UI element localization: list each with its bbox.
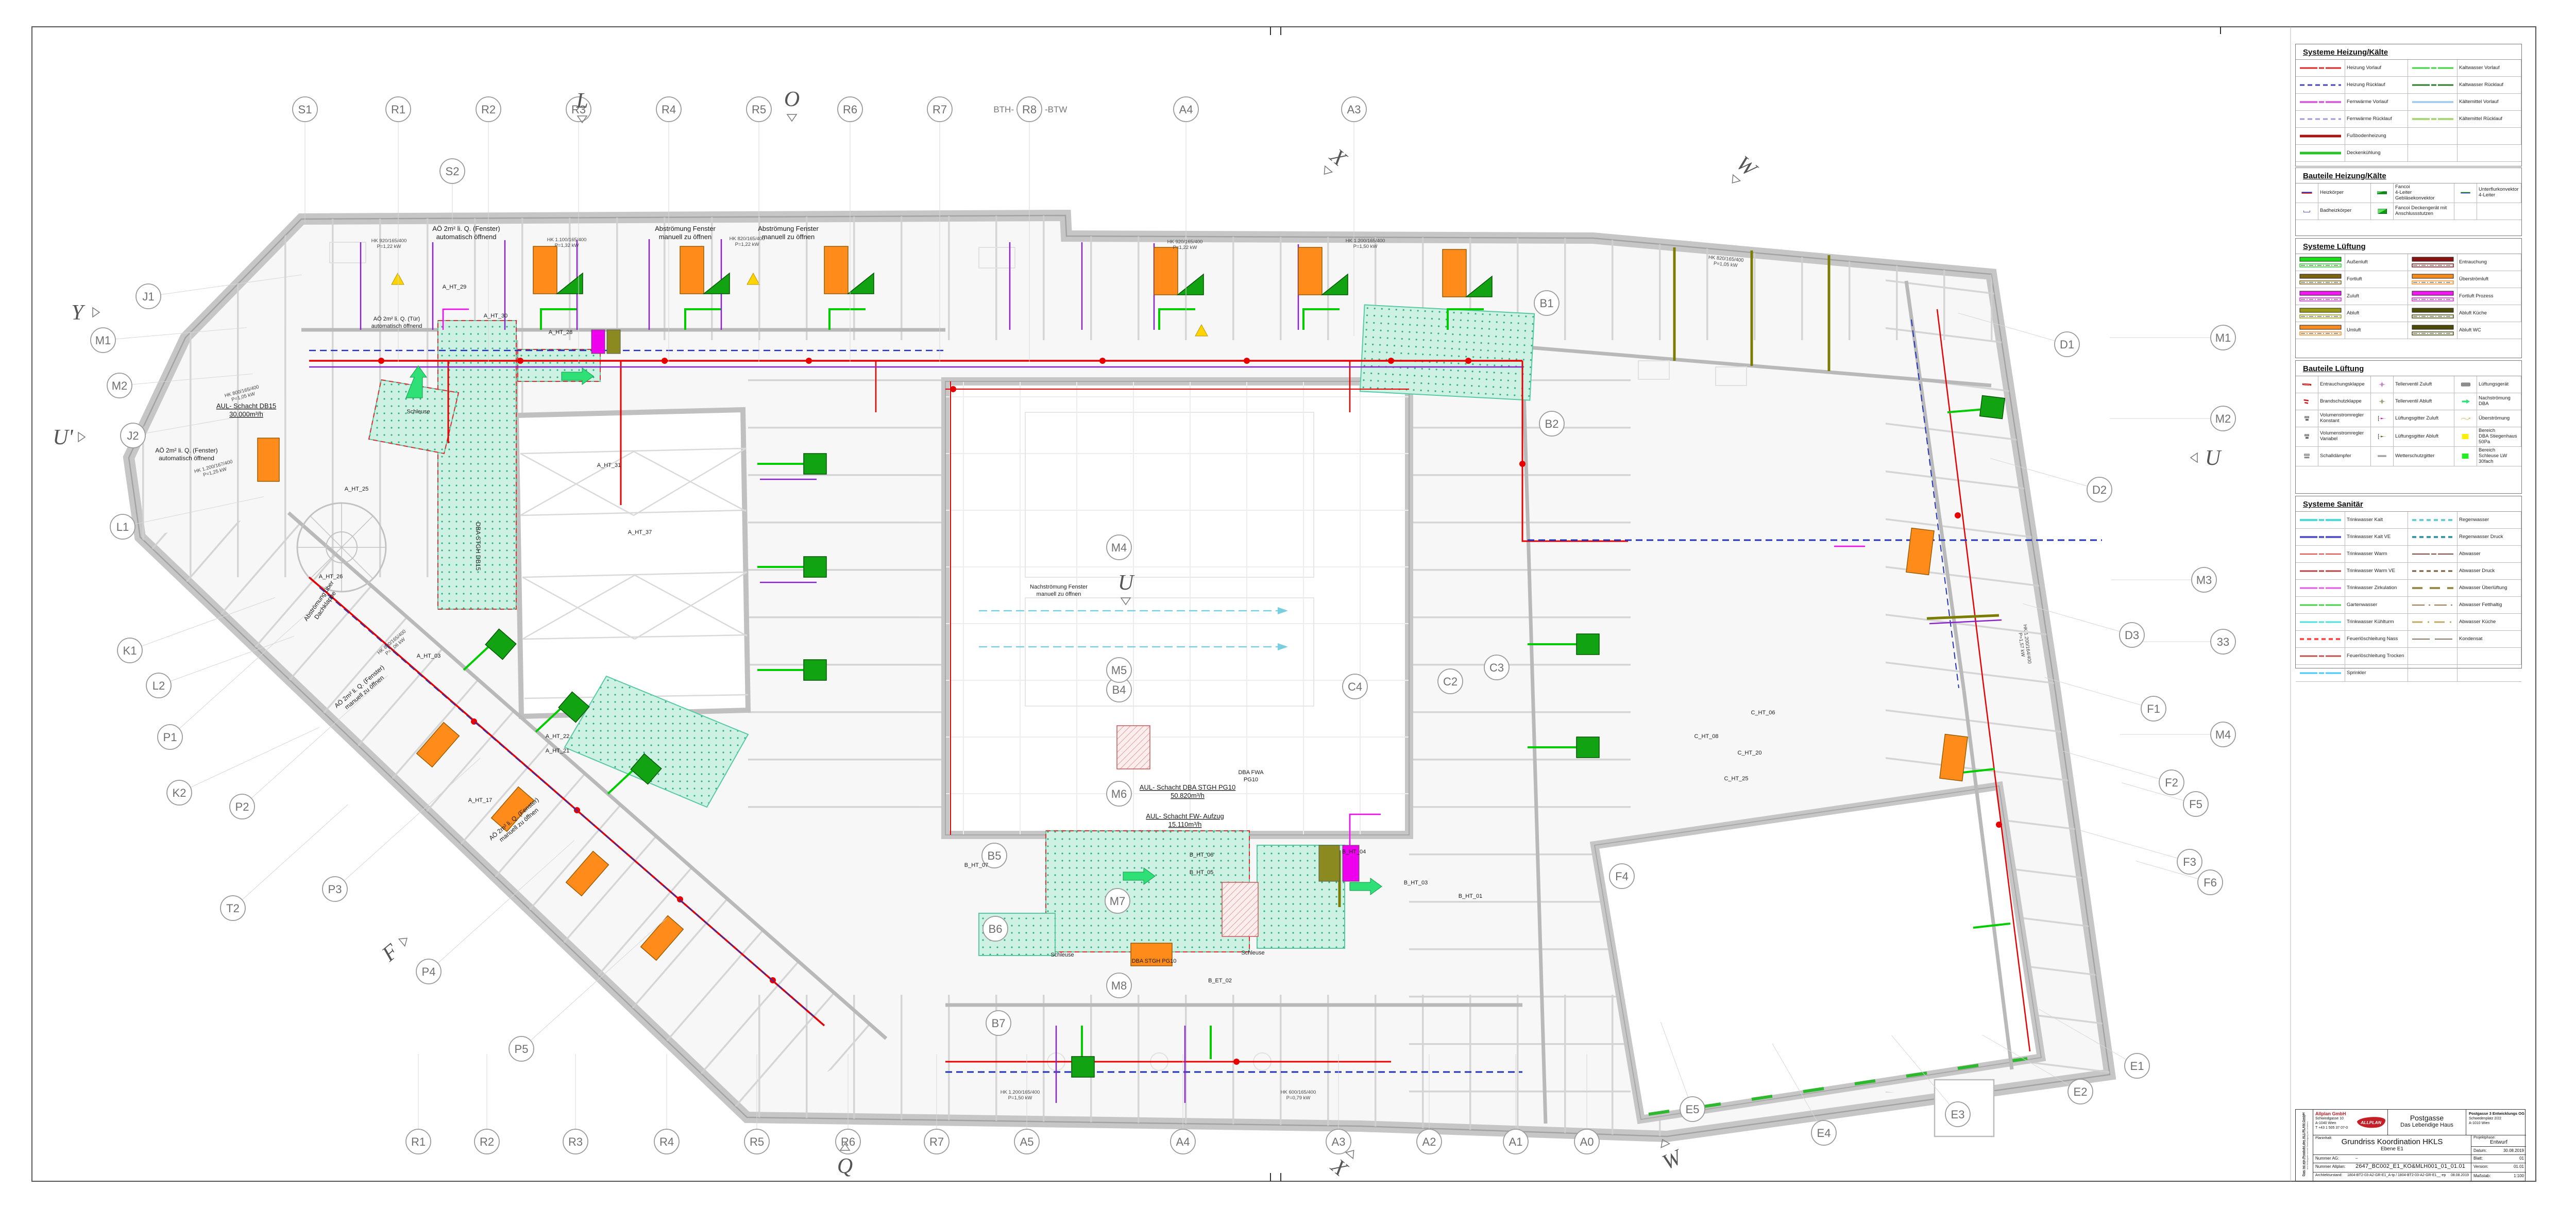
legend-swatch xyxy=(2454,376,2477,393)
line-swatch-icon xyxy=(2298,547,2343,561)
svg-text:AUL- Schacht DB15: AUL- Schacht DB15 xyxy=(216,402,276,410)
schalldaempfer-swatch-icon xyxy=(2297,449,2316,463)
svg-text:DBA STGH DB15: DBA STGH DB15 xyxy=(474,522,482,571)
legend-section-2: Systeme LüftungAußenluftEntrauchungFortl… xyxy=(2295,238,2522,358)
svg-text:A2: A2 xyxy=(1422,1135,1436,1148)
ueberstroemung-swatch-icon xyxy=(2456,411,2475,426)
svg-text:C_HT_25: C_HT_25 xyxy=(1724,776,1748,782)
svg-text:automatisch öffnend: automatisch öffnend xyxy=(436,233,497,241)
plan-annotation-16: Schleuse xyxy=(1241,950,1264,956)
legend-label: Fußbodenheizung xyxy=(2345,128,2408,145)
legend-label: Außenluft xyxy=(2345,254,2408,271)
plan-annotation-2: Abströmung Fenstermanuell zu öffnen xyxy=(758,225,819,241)
svg-text:M6: M6 xyxy=(1111,788,1127,800)
legend-swatch xyxy=(2454,183,2477,203)
legend-label: Unterflurkonvektor 4-Leiter xyxy=(2477,183,2521,203)
legend-swatch xyxy=(2454,203,2477,220)
legend-label xyxy=(2458,648,2521,665)
architekturstand-date: 08.08.2019 xyxy=(2451,1174,2471,1182)
svg-text:HK 1.100/165/400: HK 1.100/165/400 xyxy=(547,237,587,243)
grid-bubble-B6: B6 xyxy=(983,916,1008,941)
svg-text:M5: M5 xyxy=(1111,664,1127,677)
svg-text:R2: R2 xyxy=(480,1135,494,1148)
svg-text:O: O xyxy=(784,88,800,111)
legend-swatch xyxy=(2296,288,2345,305)
legend-label: Feuerlöschleitung Trocken xyxy=(2345,648,2408,665)
legend-label xyxy=(2458,145,2521,162)
svg-text:A_HT_21: A_HT_21 xyxy=(546,748,569,754)
svg-text:M2: M2 xyxy=(2215,412,2231,425)
grid-bubble-M8: M8 xyxy=(1107,973,1131,998)
legend-label: Abwasser Druck xyxy=(2458,563,2521,580)
plan-annotation-0: AÖ 2m² li. Q. (Fenster)automatisch öffne… xyxy=(432,225,500,241)
svg-text:P=0,79 kW: P=0,79 kW xyxy=(1286,1095,1311,1101)
svg-text:AUL- Schacht DBA STGH PG10: AUL- Schacht DBA STGH PG10 xyxy=(1140,783,1235,791)
legend-swatch xyxy=(2408,111,2458,128)
plan-annotation-23: B_HT_01 xyxy=(1459,893,1482,899)
duct-swatch-icon xyxy=(2410,289,2455,304)
plan-title: Grundriss Koordination HKLS xyxy=(2313,1137,2471,1146)
zone-m7 xyxy=(1046,831,1249,952)
svg-text:R6: R6 xyxy=(843,103,857,116)
plan-annotation-17: B_HT_07 xyxy=(964,862,988,868)
legend-label: Tellerventil Zuluft xyxy=(2394,376,2454,393)
legend-swatch xyxy=(2408,60,2458,77)
svg-text:M1: M1 xyxy=(95,334,111,347)
svg-text:HK 600/165/400: HK 600/165/400 xyxy=(1281,1090,1316,1095)
plan-annotation-30: A_HT_22 xyxy=(546,733,569,740)
date-block: Datum: 30.08.2019 xyxy=(2471,1147,2526,1155)
svg-text:AUL- Schacht FW- Aufzug: AUL- Schacht FW- Aufzug xyxy=(1146,812,1224,820)
legend-label: Regenwasser Druck xyxy=(2458,529,2521,546)
plan-annotation-19: B_HT_05 xyxy=(1190,869,1213,876)
legend-section-1: Bauteile Heizung/KälteHeizkörperFancoi 4… xyxy=(2295,167,2522,236)
legend-label: Nachströmung DBA xyxy=(2477,393,2521,410)
svg-text:D3: D3 xyxy=(2125,629,2139,642)
nummer-allplan-value: 2647_BC002_E1_KO&MLH001_01_01.01 xyxy=(2355,1163,2471,1172)
legend-swatch xyxy=(2296,563,2345,580)
svg-text:S2: S2 xyxy=(446,165,460,178)
line-swatch-icon xyxy=(2298,61,2343,75)
svg-text:A_HT_03: A_HT_03 xyxy=(417,653,440,659)
line-swatch-icon xyxy=(2298,146,2343,160)
legend-label xyxy=(2477,203,2521,220)
svg-text:B_ET_02: B_ET_02 xyxy=(1208,978,1232,984)
legend-label: Abwasser Überlüftung xyxy=(2458,580,2521,597)
legend-label: Tellerventil Abluft xyxy=(2394,393,2454,410)
grid-bubble-C2: C2 xyxy=(1438,669,1463,694)
plan-annotation-4: AÖ 2m² li. Q. (Fenster)automatisch öffne… xyxy=(155,447,217,462)
legend-swatch xyxy=(2296,128,2345,145)
phase-block: Projektphase: Entwurf xyxy=(2471,1135,2526,1147)
grid-bubble-B7: B7 xyxy=(986,1011,1011,1035)
nummer-allplan-row: Nummer Allplan: 2647_BC002_E1_KO&MLH001_… xyxy=(2313,1163,2471,1172)
plan-content-label: Planinhalt: xyxy=(2315,1136,2332,1140)
svg-text:manuell zu öffnen: manuell zu öffnen xyxy=(762,233,815,241)
legend-swatch xyxy=(2408,77,2458,94)
svg-text:AÖ 2m² li. Q. (Fenster): AÖ 2m² li. Q. (Fenster) xyxy=(432,225,500,232)
legend-section-title: Bauteile Lüftung xyxy=(2303,364,2521,373)
grid-bubble-M6: M6 xyxy=(1107,781,1131,806)
svg-text:C3: C3 xyxy=(1489,661,1504,674)
bereich-swatch-icon xyxy=(2456,429,2475,444)
legend-label: Badheizkörper xyxy=(2318,203,2371,220)
legend-swatch xyxy=(2296,580,2345,597)
line-swatch-icon xyxy=(2298,649,2343,663)
svg-text:P5: P5 xyxy=(515,1043,529,1056)
line-swatch-icon xyxy=(2298,632,2343,646)
svg-text:P2: P2 xyxy=(235,800,249,813)
plan-annotation-1: Abströmung Fenstermanuell zu öffnen xyxy=(655,225,716,241)
svg-text:33: 33 xyxy=(2217,635,2229,648)
svg-text:A_HT_30: A_HT_30 xyxy=(484,313,507,319)
legend-swatch xyxy=(2296,665,2345,682)
legend-label: Wetterschutzgitter xyxy=(2394,447,2454,466)
legend-swatch xyxy=(2296,614,2345,631)
legend-swatch xyxy=(2371,410,2394,427)
svg-text:A4: A4 xyxy=(1176,1135,1190,1148)
svg-text:-BTW: -BTW xyxy=(1045,105,1067,114)
svg-text:R7: R7 xyxy=(933,103,947,116)
svg-text:R4: R4 xyxy=(659,1135,674,1148)
svg-text:P=1,32 kW: P=1,32 kW xyxy=(555,243,579,248)
project-name: Postgasse xyxy=(2388,1114,2466,1122)
line-swatch-icon xyxy=(2298,530,2343,544)
svg-text:M4: M4 xyxy=(2215,728,2231,741)
legend-swatch xyxy=(2408,597,2458,614)
svg-text:B1: B1 xyxy=(1540,297,1554,310)
legend-swatch xyxy=(2408,288,2458,305)
duct-swatch-icon xyxy=(2298,255,2343,270)
plan-annotation-21: B_HT_04 xyxy=(1342,849,1366,855)
legend-swatch xyxy=(2296,393,2318,410)
svg-text:P1: P1 xyxy=(163,731,177,744)
line-swatch-icon xyxy=(2410,564,2455,578)
plan-annotation-24: A_HT_29 xyxy=(443,284,466,290)
phase-label: Projektphase: xyxy=(2473,1136,2524,1140)
legend-swatch xyxy=(2454,393,2477,410)
svg-text:L2: L2 xyxy=(152,679,165,692)
svg-text:HK 920/165/400: HK 920/165/400 xyxy=(1167,239,1203,245)
legend-label: Überströmluft xyxy=(2458,271,2521,288)
legend-label: Trinkwasser Warm VE xyxy=(2345,563,2408,580)
grid-bubble-M4: M4 xyxy=(1107,535,1131,560)
duct-swatch-icon xyxy=(2298,323,2343,338)
client-name: Postgasse 3 Entwicklungs OG xyxy=(2469,1111,2526,1116)
legend-swatch xyxy=(2408,512,2458,529)
legend-swatch xyxy=(2408,271,2458,288)
legend-swatch xyxy=(2371,376,2394,393)
svg-text:DBA STGH PG10: DBA STGH PG10 xyxy=(1132,958,1177,964)
svg-text:R5: R5 xyxy=(750,1135,764,1148)
legend-label: Abwasser xyxy=(2458,546,2521,563)
svg-text:M1: M1 xyxy=(2215,331,2231,344)
svg-text:F3: F3 xyxy=(2183,856,2196,868)
legend-swatch xyxy=(2296,648,2345,665)
legend-label: Kältemittel Vorlauf xyxy=(2458,94,2521,111)
svg-text:J1: J1 xyxy=(142,290,154,303)
plan-annotation-38: C_HT_25 xyxy=(1724,776,1748,782)
line-swatch-icon xyxy=(2410,615,2455,629)
svg-text:AÖ 2m² li. Q. (Fenster): AÖ 2m² li. Q. (Fenster) xyxy=(155,447,217,454)
legend-swatch xyxy=(2408,145,2458,162)
line-swatch-icon xyxy=(2298,598,2343,612)
svg-text:T2: T2 xyxy=(226,902,240,915)
svg-text:A5: A5 xyxy=(1020,1135,1034,1148)
line-swatch-icon xyxy=(2410,78,2455,92)
duct-swatch-icon xyxy=(2298,272,2343,287)
legend-label: Lüftungsgerät xyxy=(2477,376,2521,393)
svg-text:F5: F5 xyxy=(2189,798,2202,811)
legend-swatch xyxy=(2296,183,2318,203)
svg-text:B5: B5 xyxy=(988,849,1002,862)
svg-text:Abströmung Fenster: Abströmung Fenster xyxy=(758,225,819,232)
legend-label: Abluft WC xyxy=(2458,322,2521,339)
line-swatch-icon xyxy=(2410,513,2455,527)
bsk-swatch-icon xyxy=(2297,394,2316,409)
geraet-swatch-icon xyxy=(2456,377,2475,392)
plan-annotation-18: B_HT_06 xyxy=(1190,852,1213,858)
svg-text:A_HT_28: A_HT_28 xyxy=(549,329,572,336)
line-swatch-icon xyxy=(2410,61,2455,75)
svg-text:U: U xyxy=(2205,446,2222,470)
legend-label: Heizkörper xyxy=(2318,183,2371,203)
project-subtitle: Das Lebendige Haus xyxy=(2388,1122,2466,1128)
legend-label: Fancoi 4-Leiter Gebläsekonvektor xyxy=(2394,183,2454,203)
svg-text:Schleuse: Schleuse xyxy=(1050,952,1074,958)
svg-text:M3: M3 xyxy=(2196,574,2212,587)
drawing-sheet: S1S2R1R2R3R4R5R6R7R8BTH--BTWA4A3R1R2R3R4… xyxy=(0,0,2555,1206)
company-name: Allplan GmbH xyxy=(2315,1111,2353,1117)
plan-subtitle: Ebene E1 xyxy=(2313,1146,2471,1152)
svg-text:ALLPLAN: ALLPLAN xyxy=(2360,1120,2382,1125)
legend-swatch xyxy=(2371,393,2394,410)
legend-label: Kaltwasser Rücklauf xyxy=(2458,77,2521,94)
zone-dba-fwa xyxy=(1222,882,1258,936)
svg-text:A0: A0 xyxy=(1580,1135,1594,1148)
legend-label: Entrauchungsklappe xyxy=(2318,376,2371,393)
line-swatch-icon xyxy=(2410,598,2455,612)
legend-label: Bereich Schleuse LW 30fach xyxy=(2477,447,2521,466)
svg-text:50.820m³/h: 50.820m³/h xyxy=(1171,792,1205,799)
svg-text:F6: F6 xyxy=(2204,876,2217,889)
heizkoerper-swatch-icon xyxy=(2297,186,2316,200)
client-address2: A-1010 Wien xyxy=(2469,1121,2526,1126)
legend-label: Zuluft xyxy=(2345,288,2408,305)
massstab-row: Maßstab: 1:100 xyxy=(2471,1172,2526,1182)
line-swatch-icon xyxy=(2298,112,2343,126)
gitter-swatch-icon xyxy=(2372,411,2392,426)
line-swatch-icon xyxy=(2298,129,2343,143)
legend-swatch xyxy=(2408,614,2458,631)
legend-section-title: Systeme Heizung/Kälte xyxy=(2303,48,2521,57)
svg-text:S1: S1 xyxy=(298,103,312,116)
legend-label: Entrauchung xyxy=(2458,254,2521,271)
svg-text:30.000m³/h: 30.000m³/h xyxy=(229,410,263,418)
svg-text:HK 820/165/400: HK 820/165/400 xyxy=(730,236,765,242)
svg-text:manuell zu öffnen: manuell zu öffnen xyxy=(659,233,711,241)
legend-swatch xyxy=(2371,447,2394,466)
plan-annotation-33: A_HT_37 xyxy=(628,529,652,535)
legend-swatch xyxy=(2408,254,2458,271)
legend-label: Volumenstromregler Variabel xyxy=(2318,427,2371,447)
plan-annotation-14: DBA STGH PG10 xyxy=(1132,958,1177,964)
svg-text:R1: R1 xyxy=(391,103,405,116)
svg-text:E1: E1 xyxy=(2130,1060,2144,1073)
plan-annotation-25: A_HT_30 xyxy=(484,313,507,319)
legend-label: Heizung Rücklauf xyxy=(2345,77,2408,94)
legend-swatch xyxy=(2296,631,2345,648)
legend-swatch xyxy=(2454,410,2477,427)
plan-content-block: Planinhalt: Grundriss Koordination HKLS … xyxy=(2313,1135,2471,1155)
legend-swatch xyxy=(2296,254,2345,271)
svg-text:A_HT_37: A_HT_37 xyxy=(628,529,652,535)
legend-label: Regenwasser xyxy=(2458,512,2521,529)
truss-hall xyxy=(516,410,748,716)
plan-annotation-35: C_HT_06 xyxy=(1751,710,1775,716)
fancoil-decke-swatch-icon xyxy=(2372,204,2392,219)
svg-text:Nachströmung Fenster: Nachströmung Fenster xyxy=(1030,584,1088,590)
svg-text:AÖ 2m² li. Q. (Tür): AÖ 2m² li. Q. (Tür) xyxy=(374,316,420,322)
svg-text:C4: C4 xyxy=(1348,680,1362,693)
grid-bubble-C3: C3 xyxy=(1484,655,1509,680)
legend-swatch xyxy=(2296,94,2345,111)
plan-annotation-27: A_HT_28 xyxy=(549,329,572,336)
line-swatch-icon xyxy=(2298,95,2343,109)
legend-swatch xyxy=(2296,546,2345,563)
svg-text:L: L xyxy=(575,89,588,113)
nummer-ag-row: Nummer AG: – xyxy=(2313,1155,2471,1163)
svg-text:K2: K2 xyxy=(173,786,187,799)
svg-text:P=1,50 kW: P=1,50 kW xyxy=(1353,244,1378,249)
svg-text:F4: F4 xyxy=(1615,870,1629,883)
plan-annotation-9: DBA STGH DB15 xyxy=(474,522,482,571)
legend-swatch xyxy=(2371,427,2394,447)
company-address1: Schwindgasse 10 xyxy=(2315,1117,2353,1121)
architekturstand-value: 1804-BT2-03-A2-GR-E1_A-tp / 1804-BT2-03-… xyxy=(2347,1174,2451,1182)
legend-swatch xyxy=(2408,665,2458,682)
svg-text:B_HT_01: B_HT_01 xyxy=(1459,893,1482,899)
svg-text:R3: R3 xyxy=(568,1135,583,1148)
nummer-allplan-label: Nummer Allplan: xyxy=(2315,1164,2355,1172)
fancoil-swatch-icon xyxy=(2372,186,2392,200)
svg-text:C_HT_08: C_HT_08 xyxy=(1694,733,1718,740)
legend-label: Trinkwasser Kühlturm xyxy=(2345,614,2408,631)
svg-text:A_HT_31: A_HT_31 xyxy=(597,462,621,468)
legend-swatch xyxy=(2296,60,2345,77)
unterflur-swatch-icon xyxy=(2456,186,2475,200)
svg-text:K1: K1 xyxy=(123,644,137,657)
svg-text:B_HT_04: B_HT_04 xyxy=(1342,849,1366,855)
line-swatch-icon xyxy=(2298,666,2343,680)
legend-swatch xyxy=(2408,546,2458,563)
massstab-value: 1:100 xyxy=(2500,1174,2526,1182)
legend-swatch xyxy=(2296,322,2345,339)
svg-text:DBA FWA: DBA FWA xyxy=(1238,769,1264,776)
arrow-swatch-icon xyxy=(2456,394,2475,409)
svg-text:E3: E3 xyxy=(1951,1108,1965,1121)
svg-text:C2: C2 xyxy=(1443,675,1458,688)
plan-annotation-32: A_HT_17 xyxy=(468,797,492,803)
svg-text:E5: E5 xyxy=(1686,1103,1700,1116)
svg-text:Schleuse: Schleuse xyxy=(1241,950,1264,956)
line-swatch-icon xyxy=(2410,95,2455,109)
svg-text:P=1,22 kW: P=1,22 kW xyxy=(735,242,759,247)
legend-section-title: Systeme Sanitär xyxy=(2303,500,2521,509)
svg-text:automatisch öffnend: automatisch öffnend xyxy=(371,323,422,329)
svg-text:HK 1.200/165/400: HK 1.200/165/400 xyxy=(1346,238,1385,244)
legend-swatch xyxy=(2296,597,2345,614)
legend-label: Trinkwasser Warm xyxy=(2345,546,2408,563)
line-swatch-icon xyxy=(2298,581,2343,595)
legend-label: Abluft xyxy=(2345,305,2408,322)
svg-text:B_HT_06: B_HT_06 xyxy=(1190,852,1213,858)
company-address2: A-1040 Wien xyxy=(2315,1121,2353,1126)
line-swatch-icon xyxy=(2298,78,2343,92)
project-block: Postgasse Das Lebendige Haus xyxy=(2387,1110,2466,1135)
plan-annotation-36: C_HT_08 xyxy=(1694,733,1718,740)
legend-label: Schalldämpfer xyxy=(2318,447,2371,466)
version-value: 01.01 xyxy=(2500,1164,2526,1172)
svg-text:B_HT_05: B_HT_05 xyxy=(1190,869,1213,876)
client-block: Postgasse 3 Entwicklungs OG Schwedenplat… xyxy=(2466,1110,2526,1135)
svg-text:F2: F2 xyxy=(2165,776,2178,789)
svg-text:BTH-: BTH- xyxy=(993,105,1014,114)
legend-label: Kondensat xyxy=(2458,631,2521,648)
svg-text:A3: A3 xyxy=(1332,1135,1346,1148)
line-swatch-icon xyxy=(2298,513,2343,527)
legend-swatch xyxy=(2408,580,2458,597)
grid-bubble-M5: M5 xyxy=(1107,658,1131,682)
title-block: Das ist ein Produkt der ALLPLAN GmbH Die… xyxy=(2295,1109,2526,1181)
svg-text:R8: R8 xyxy=(1022,103,1037,116)
svg-text:P=1,22 kW: P=1,22 kW xyxy=(377,244,401,249)
legend-label: Feuerlöschleitung Nass xyxy=(2345,631,2408,648)
legend-label: Bereich DBA Stiegenhaus 50Pa xyxy=(2477,427,2521,447)
svg-text:M4: M4 xyxy=(1111,541,1127,554)
svg-text:P4: P4 xyxy=(422,965,436,978)
line-swatch-icon xyxy=(2410,632,2455,646)
entrklappe-swatch-icon xyxy=(2297,377,2316,392)
date-label: Datum: xyxy=(2473,1148,2503,1154)
plan-annotation-15: Schleuse xyxy=(1050,952,1074,958)
svg-text:Abströmung Fenster: Abströmung Fenster xyxy=(655,225,716,232)
architekturstand-label: Architekturstand: xyxy=(2315,1174,2347,1182)
grid-bubble-B2: B2 xyxy=(1539,411,1564,436)
svg-text:E2: E2 xyxy=(2074,1085,2088,1098)
svg-text:L1: L1 xyxy=(116,521,129,533)
massstab-label: Maßstab: xyxy=(2473,1174,2500,1182)
bereich-swatch-icon xyxy=(2456,449,2475,463)
svg-text:D2: D2 xyxy=(2092,483,2107,496)
svg-text:A1: A1 xyxy=(1509,1135,1523,1148)
svg-text:R7: R7 xyxy=(929,1135,944,1148)
legend-swatch xyxy=(2408,94,2458,111)
version-row: Version: 01.01 xyxy=(2471,1163,2526,1172)
legend-swatch xyxy=(2296,203,2318,220)
svg-text:A_HT_17: A_HT_17 xyxy=(468,797,492,803)
legend-label: Abwasser Fetthaltig xyxy=(2458,597,2521,614)
duct-swatch-icon xyxy=(2410,255,2455,270)
company-phone: T +43 1 505 37 07-0 xyxy=(2315,1126,2353,1131)
duct-swatch-icon xyxy=(2298,306,2343,321)
nummer-ag-value: – xyxy=(2355,1156,2471,1163)
svg-text:PG10: PG10 xyxy=(1244,777,1258,783)
svg-text:P=1,50 kW: P=1,50 kW xyxy=(1008,1095,1032,1101)
version-label: Version: xyxy=(2473,1164,2500,1172)
svg-text:B6: B6 xyxy=(989,923,1003,935)
svg-text:A3: A3 xyxy=(1347,103,1361,116)
